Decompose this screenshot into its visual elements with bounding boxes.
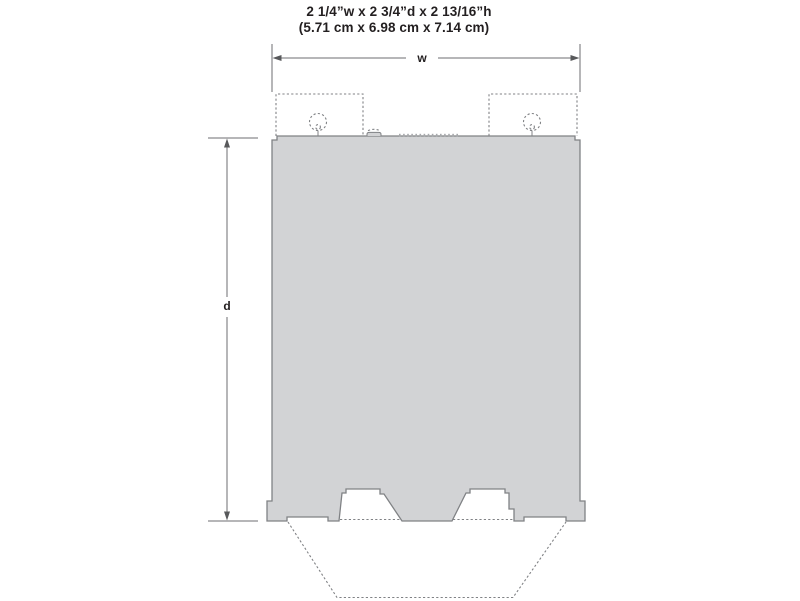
- vent-tick-icon: [436, 134, 438, 137]
- footprint-outline: [267, 136, 585, 521]
- light-bulb-left-icon: [316, 125, 321, 130]
- width-dimension: w: [272, 44, 580, 92]
- diagram-canvas: 2 1/4”w x 2 3/4”d x 2 13/16”h (5.71 cm x…: [0, 0, 800, 601]
- vent-tick-icon: [440, 134, 442, 137]
- width-label: w: [416, 51, 427, 65]
- vent-tick-icon: [456, 134, 458, 137]
- vent-tick-icon: [432, 134, 434, 137]
- width-arrow-left-icon: [273, 55, 282, 61]
- vent-tick-icon: [415, 134, 417, 137]
- light-fixture-right: [524, 114, 541, 137]
- vent-tick-icon: [444, 134, 446, 137]
- depth-label: d: [223, 299, 230, 313]
- base-trapezoid-outline: [288, 522, 566, 598]
- switch-lever-icon: [368, 129, 380, 130]
- switch-bump-icon: [367, 132, 381, 136]
- dimensions-title-metric: (5.71 cm x 6.98 cm x 7.14 cm): [299, 20, 490, 35]
- light-bulb-right-icon: [530, 125, 535, 130]
- depth-arrow-down-icon: [224, 512, 230, 521]
- overhang-right-outline: [489, 94, 577, 136]
- dimension-diagram: 2 1/4”w x 2 3/4”d x 2 13/16”h (5.71 cm x…: [0, 0, 800, 601]
- vent-tick-icon: [399, 134, 401, 137]
- vent-ticks: [399, 134, 458, 137]
- vent-tick-icon: [407, 134, 409, 137]
- vent-tick-icon: [448, 134, 450, 137]
- light-circle-right-icon: [524, 114, 541, 131]
- vent-tick-icon: [411, 134, 413, 137]
- depth-dimension: d: [208, 138, 258, 521]
- light-fixture-left: [310, 114, 327, 137]
- dimensions-title-inches: 2 1/4”w x 2 3/4”d x 2 13/16”h: [306, 4, 491, 19]
- vent-tick-icon: [420, 134, 422, 137]
- overhang-left-outline: [276, 94, 363, 136]
- vent-tick-icon: [428, 134, 430, 137]
- top-edge-switch: [367, 129, 381, 136]
- vent-tick-icon: [424, 134, 426, 137]
- light-circle-left-icon: [310, 114, 327, 131]
- vent-tick-icon: [403, 134, 405, 137]
- vent-tick-icon: [452, 134, 454, 137]
- depth-arrow-up-icon: [224, 139, 230, 148]
- width-arrow-right-icon: [571, 55, 580, 61]
